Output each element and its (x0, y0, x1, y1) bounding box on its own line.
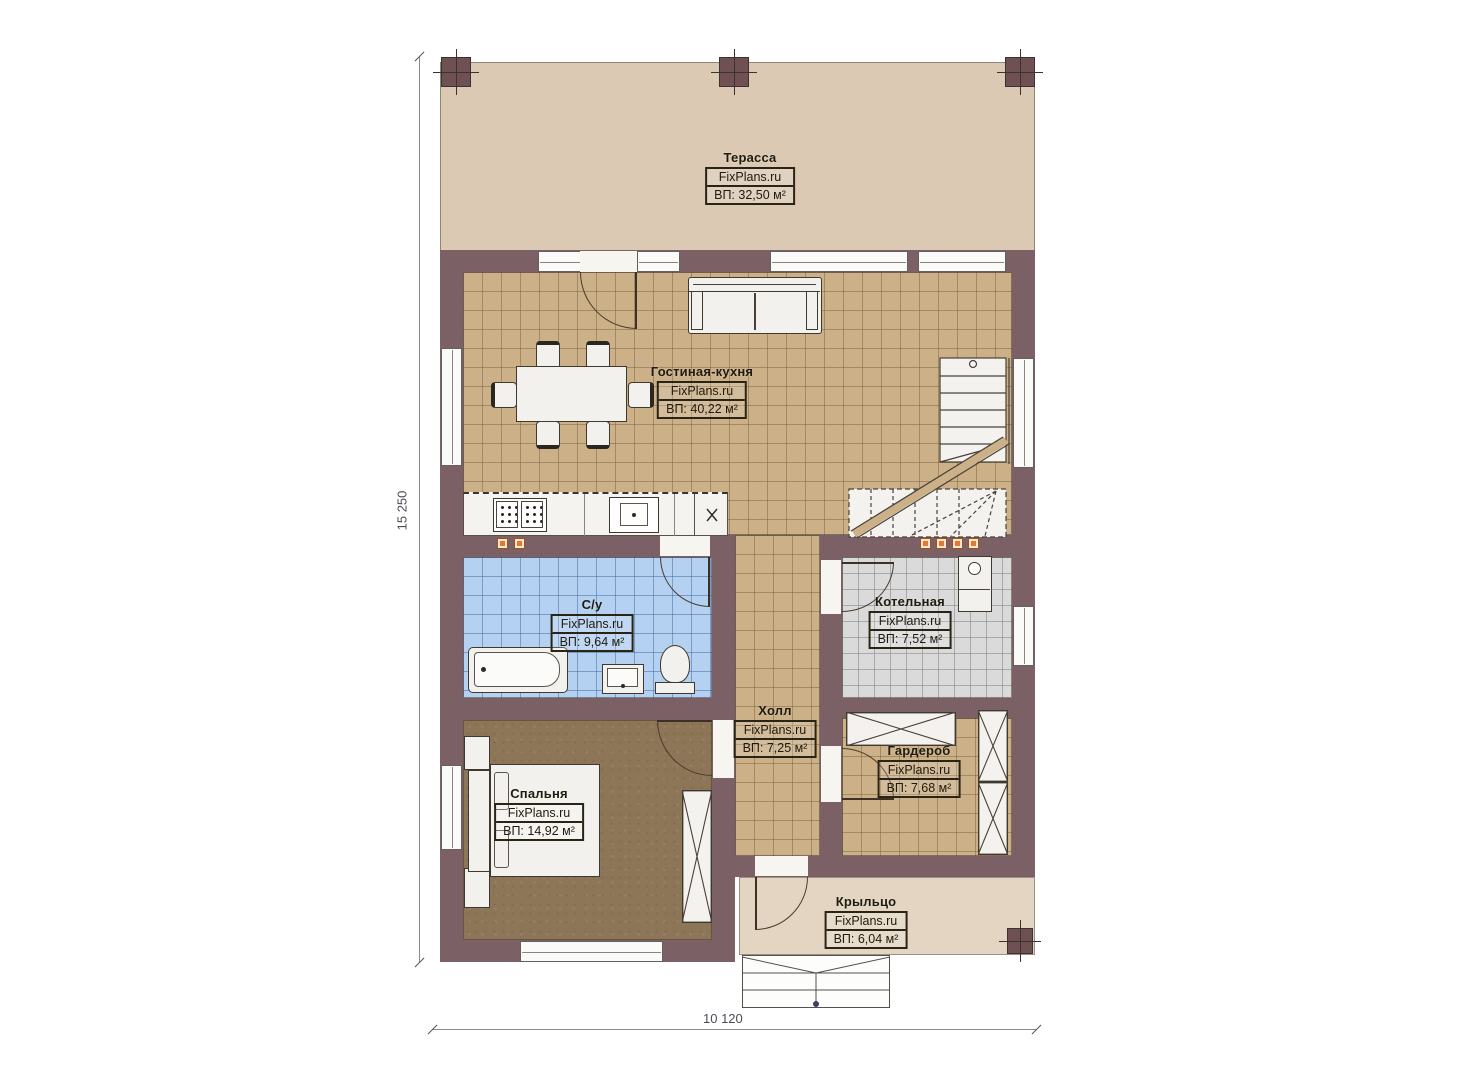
room-area: ВП: 6,04 м² (827, 929, 906, 947)
stove-symbol (493, 498, 547, 532)
room-name: Крыльцо (825, 894, 908, 909)
door-gap-bathroom (660, 536, 710, 556)
window-top-living (770, 251, 908, 272)
porch-door (755, 877, 808, 930)
door-leaf (708, 557, 710, 607)
sofa-seat-divider (754, 293, 756, 330)
room-label-terrace: Терасса FixPlans.ru ВП: 32,50 м² (705, 150, 795, 205)
room-name: Котельная (869, 594, 952, 609)
sofa-symbol (688, 277, 822, 334)
room-label-box: FixPlans.ru ВП: 32,50 м² (705, 167, 795, 205)
terrace-door (580, 272, 637, 329)
sofa-arm-right (806, 291, 818, 330)
wardrobe-cabinet-top (846, 712, 956, 746)
boiler-divider (959, 589, 990, 590)
terrace-post-right (1005, 57, 1035, 87)
toilet-bowl (660, 645, 690, 683)
room-area: ВП: 7,68 м² (880, 778, 959, 796)
floor-plan-canvas: Терасса FixPlans.ru ВП: 32,50 м² Гостина… (0, 0, 1473, 1080)
room-name: Гостиная-кухня (651, 364, 753, 379)
vent-square (514, 538, 525, 549)
vent-square (920, 538, 931, 549)
room-area: ВП: 9,64 м² (553, 632, 632, 650)
room-name: Гардероб (878, 743, 961, 758)
room-label-living-kitchen: Гостиная-кухня FixPlans.ru ВП: 40,22 м² (651, 364, 753, 419)
room-label-hall: Холл FixPlans.ru ВП: 7,25 м² (734, 703, 817, 758)
vent-square (497, 538, 508, 549)
brand-watermark: FixPlans.ru (827, 913, 906, 929)
window-right-boiler (1013, 606, 1034, 666)
brand-watermark: FixPlans.ru (736, 722, 815, 738)
wardrobe-cabinet-right-upper (978, 710, 1008, 782)
bathroom-door (660, 557, 710, 607)
door-arc (755, 877, 808, 930)
brand-watermark: FixPlans.ru (553, 616, 632, 632)
window-left-bedroom (441, 765, 462, 850)
counter-divider-2 (674, 494, 675, 536)
window-top-right (918, 251, 1006, 272)
toilet-tank (655, 682, 695, 694)
door-gap-wardrobe (821, 746, 841, 802)
door-arc (580, 272, 637, 329)
kitchen-sink-symbol (609, 497, 659, 533)
door-leaf (635, 272, 637, 329)
counter-divider-1 (584, 494, 585, 536)
dining-table-symbol (516, 366, 627, 422)
porch-steps-symbol (742, 955, 890, 1008)
door-leaf (842, 798, 894, 800)
room-name: Терасса (705, 150, 795, 165)
room-label-boiler: Котельная FixPlans.ru ВП: 7,52 м² (869, 594, 952, 649)
window-top-mid (637, 251, 680, 272)
dining-chair (586, 341, 610, 369)
dining-chair (586, 421, 610, 449)
dimension-line-horizontal (432, 1029, 1037, 1030)
room-name: Спальня (494, 786, 584, 801)
kitchen-sink-drain (632, 513, 636, 517)
dining-chair (536, 341, 560, 369)
door-gap-boiler (821, 560, 841, 614)
vanity-sink-drain (621, 684, 625, 688)
boiler-unit-symbol (958, 556, 992, 612)
room-label-bedroom: Спальня FixPlans.ru ВП: 14,92 м² (494, 786, 584, 841)
room-label-bathroom: С/у FixPlans.ru ВП: 9,64 м² (551, 597, 634, 652)
bedroom-wardrobe-cabinet (682, 790, 712, 923)
vanity-sink-symbol (602, 664, 644, 694)
bathtub-inner (474, 652, 560, 687)
cabinet-x-mark (695, 494, 729, 536)
boiler-dial (968, 562, 981, 575)
room-area: ВП: 40,22 м² (659, 399, 745, 417)
dining-chair (536, 421, 560, 449)
room-label-box: FixPlans.ru ВП: 14,92 м² (494, 803, 584, 841)
stove-burners-right (521, 501, 543, 528)
vent-square (936, 538, 947, 549)
room-label-box: FixPlans.ru ВП: 9,64 м² (551, 614, 634, 652)
door-arc (660, 557, 710, 607)
dimension-label-vertical: 15 250 (394, 491, 409, 531)
room-label-box: FixPlans.ru ВП: 7,68 м² (878, 760, 961, 798)
room-area: ВП: 7,52 м² (871, 629, 950, 647)
bathtub-drain (481, 667, 486, 672)
door-leaf (755, 877, 757, 930)
cabinet-x-symbol (694, 494, 728, 536)
brand-watermark: FixPlans.ru (871, 613, 950, 629)
dimension-line-vertical (419, 57, 420, 963)
door-gap-bedroom (713, 720, 734, 778)
hall-floor (735, 535, 820, 856)
stove-burners-left (496, 501, 518, 528)
room-label-box: FixPlans.ru ВП: 40,22 м² (657, 381, 747, 419)
stairs-symbol (848, 355, 1012, 539)
bed-headboard (468, 770, 490, 872)
brand-watermark: FixPlans.ru (659, 383, 745, 399)
window-top-left (538, 251, 582, 272)
window-left-living (441, 348, 462, 466)
door-arc (657, 720, 712, 776)
wardrobe-cabinet-right-lower (978, 782, 1008, 855)
room-label-box: FixPlans.ru ВП: 6,04 м² (825, 911, 908, 949)
room-area: ВП: 14,92 м² (496, 821, 582, 839)
window-bottom-bedroom (520, 941, 663, 962)
door-leaf (657, 720, 712, 722)
room-name: Холл (734, 703, 817, 718)
window-right-stairs (1013, 358, 1034, 468)
dimension-label-horizontal: 10 120 (703, 1011, 743, 1026)
nightstand-top (464, 736, 490, 770)
terrace-post-center (719, 57, 749, 87)
nightstand-bottom (464, 868, 490, 908)
kitchen-counter (463, 492, 728, 536)
brand-watermark: FixPlans.ru (707, 169, 793, 185)
dining-chair (491, 382, 517, 408)
bathtub-symbol (468, 647, 568, 693)
room-area: ВП: 7,25 м² (736, 738, 815, 756)
sofa-arm-left (691, 291, 703, 330)
door-gap-terrace (580, 251, 637, 272)
room-label-wardrobe: Гардероб FixPlans.ru ВП: 7,68 м² (878, 743, 961, 798)
sofa-back-line (693, 284, 816, 285)
bedroom-door (657, 720, 712, 776)
vent-square (952, 538, 963, 549)
brand-watermark: FixPlans.ru (880, 762, 959, 778)
room-name: С/у (551, 597, 634, 612)
room-label-box: FixPlans.ru ВП: 7,52 м² (869, 611, 952, 649)
sofa-back (689, 278, 820, 292)
brand-watermark: FixPlans.ru (496, 805, 582, 821)
porch-post (1007, 928, 1033, 954)
door-leaf (842, 562, 894, 564)
room-label-box: FixPlans.ru ВП: 7,25 м² (734, 720, 817, 758)
door-gap-porch (755, 856, 808, 876)
vent-square (968, 538, 979, 549)
terrace-post-left (441, 57, 471, 87)
room-label-porch: Крыльцо FixPlans.ru ВП: 6,04 м² (825, 894, 908, 949)
room-area: ВП: 32,50 м² (707, 185, 793, 203)
